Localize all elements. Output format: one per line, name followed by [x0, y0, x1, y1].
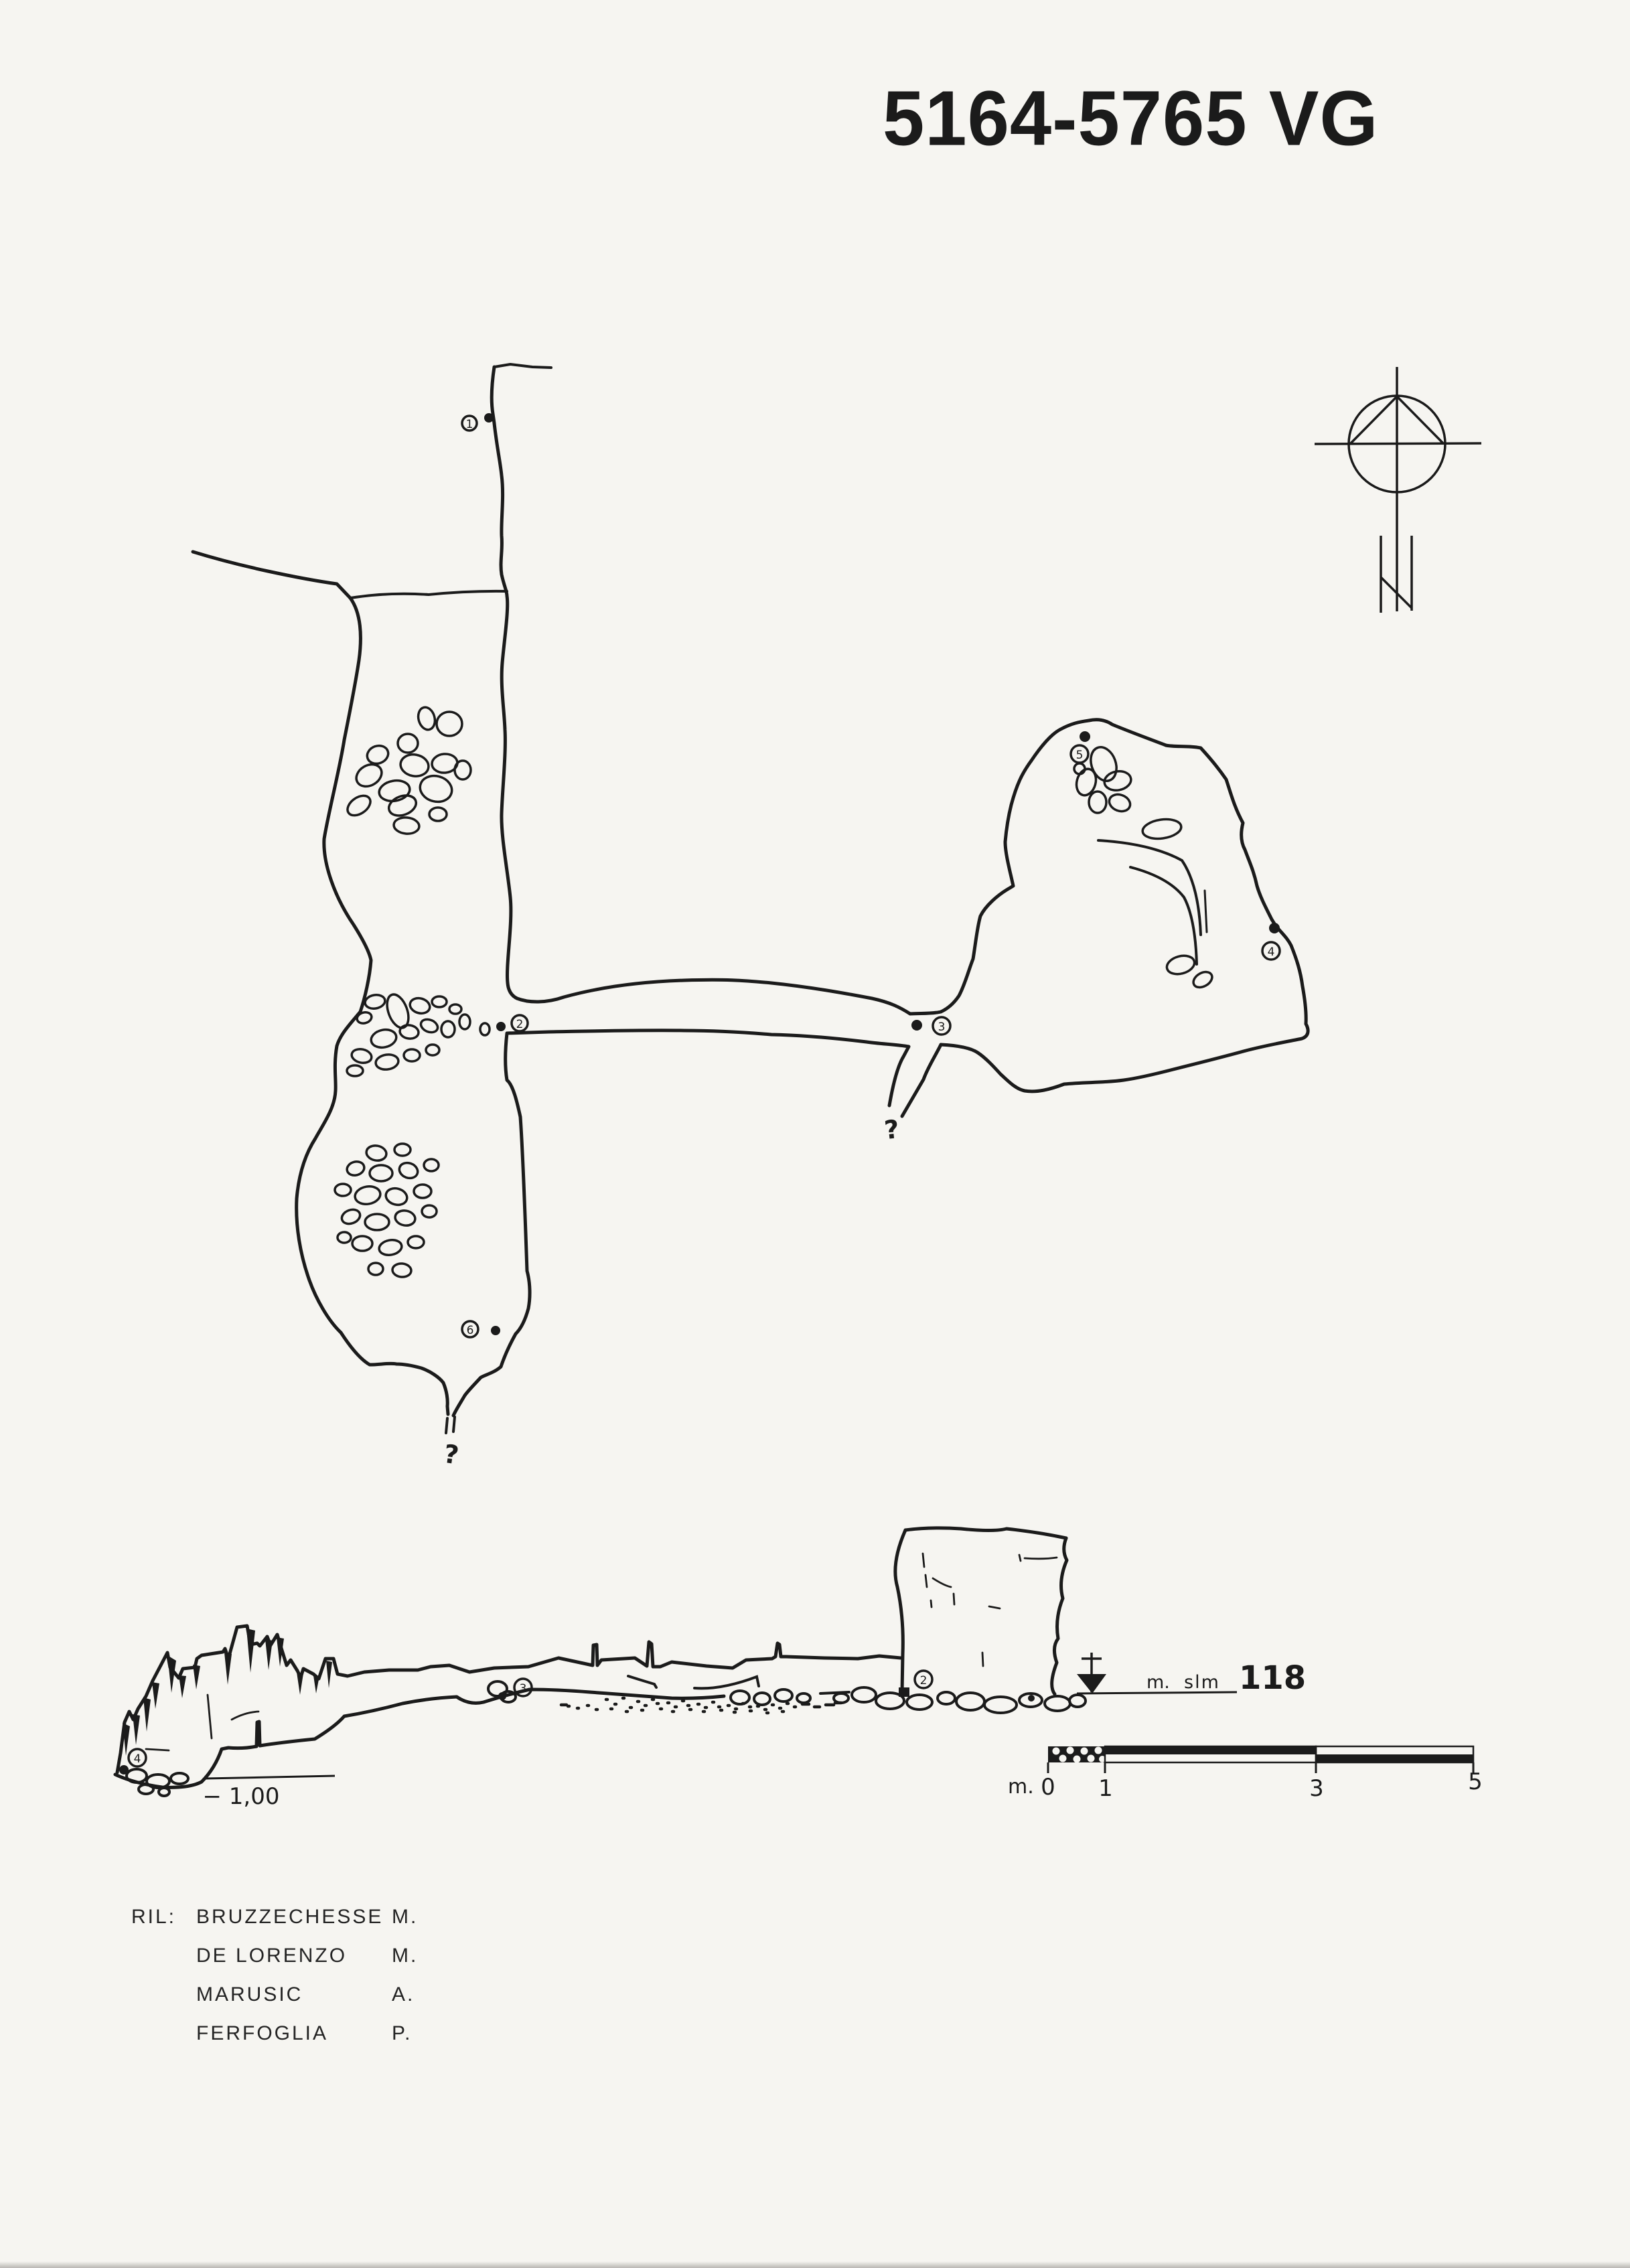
cobble	[775, 1689, 792, 1702]
ledge-line	[350, 591, 507, 598]
shaft-crack	[923, 1554, 932, 1607]
ledge-line	[146, 1749, 169, 1750]
elevation-unit: slm	[1184, 1672, 1220, 1693]
boulder	[1165, 953, 1196, 977]
boulder	[437, 712, 462, 736]
boulder	[378, 1238, 402, 1257]
plan-outline	[193, 364, 1308, 1433]
surveyor-name: DE LORENZO	[196, 1945, 392, 1967]
station-dot	[1269, 923, 1280, 933]
cobble	[1045, 1696, 1070, 1711]
boulder	[404, 1049, 420, 1061]
boulder	[384, 1186, 409, 1207]
boulder	[346, 1160, 366, 1177]
credits-block: RIL: BRUZZECHESSE M. DE LORENZO M. MARUS…	[131, 1906, 432, 2061]
boulder	[352, 1236, 372, 1251]
boulder	[365, 1214, 389, 1230]
station-dot	[491, 1326, 500, 1335]
boulder	[1107, 791, 1132, 814]
plan-breakdown-boulders	[335, 705, 1215, 1278]
boulder	[393, 816, 420, 834]
cross-section: 4 3 2 − 1,00	[115, 1528, 1306, 1810]
boulder	[399, 753, 431, 779]
elevation-value: 118	[1239, 1659, 1306, 1697]
credit-row: MARUSIC A.	[131, 1983, 432, 2022]
station-3: 3	[911, 1017, 950, 1035]
boulder	[424, 1159, 439, 1171]
boulder	[1191, 969, 1215, 990]
boulder	[422, 1205, 437, 1217]
boulder	[408, 1236, 424, 1248]
surveyor-initial: P.	[392, 2022, 432, 2045]
boulder	[432, 996, 447, 1007]
elevation-datum-marker: m. slm 118	[1077, 1653, 1306, 1697]
ledge-line	[232, 1712, 258, 1720]
plan-main-wall	[492, 367, 1308, 1091]
boulder	[414, 1185, 431, 1198]
boulder	[398, 734, 418, 753]
station-dot	[484, 413, 494, 423]
boulder	[417, 772, 455, 805]
station-dot	[496, 1022, 506, 1031]
boulder	[335, 1184, 351, 1196]
survey-sheet: 5164-5765 VG	[0, 0, 1630, 2268]
boulder	[392, 1263, 412, 1278]
station-6: 6	[462, 1321, 500, 1337]
scale-numbers: 0 1 3 5	[1041, 1768, 1483, 1802]
floor-step	[694, 1677, 759, 1688]
scale-dot	[1081, 1748, 1088, 1755]
scale-unit: m.	[1008, 1775, 1034, 1799]
boulder	[347, 1065, 363, 1076]
floor-dot	[1028, 1695, 1035, 1702]
boulder	[375, 1053, 400, 1071]
elevation-prefix: m.	[1146, 1672, 1170, 1693]
scale-dot	[1073, 1756, 1081, 1763]
cobble	[852, 1687, 876, 1702]
ledge-line	[208, 1695, 212, 1738]
cobble	[754, 1693, 770, 1705]
surveyor-name: FERFOGLIA	[196, 2022, 392, 2045]
scale-tick-label: 1	[1098, 1775, 1113, 1802]
plan-slope-lines	[1098, 840, 1207, 964]
scale-dot	[1095, 1747, 1102, 1754]
depth-label: − 1,00	[203, 1783, 280, 1810]
boulder	[1089, 791, 1106, 813]
scale-dot	[1053, 1748, 1060, 1755]
station-dot	[119, 1765, 129, 1774]
scale-segment-3-5-fill	[1316, 1754, 1473, 1762]
scale-dot	[1088, 1755, 1095, 1762]
station-label: 2	[516, 1018, 524, 1031]
station-label: 1	[466, 418, 473, 431]
scale-dot	[1059, 1755, 1067, 1762]
surveyor-initial: M.	[392, 1906, 432, 1929]
scale-segment-1-3-fill	[1105, 1746, 1316, 1754]
boulder	[416, 705, 437, 731]
plan-south-wall	[453, 1031, 909, 1416]
cobble	[797, 1693, 810, 1703]
scale-bar: m. 0 1 3 5	[1008, 1746, 1483, 1802]
plan-stations: 1 2 3 4	[462, 413, 1280, 1337]
cobble	[159, 1788, 169, 1796]
boulder	[449, 1004, 461, 1014]
surveyor-initial: A.	[392, 1983, 432, 2006]
boulder	[419, 1017, 440, 1035]
boulder	[441, 1021, 455, 1037]
slope-line	[1130, 867, 1197, 964]
surveyor-name: MARUSIC	[196, 1983, 392, 2006]
boulder	[340, 1207, 362, 1226]
north-arrow-horizontal	[1315, 443, 1481, 444]
station-1: 1	[462, 413, 494, 431]
station-dot	[1080, 731, 1090, 742]
boulder	[1141, 817, 1182, 841]
boulder	[394, 1144, 411, 1156]
plan-west-wall	[297, 598, 448, 1414]
credit-row: RIL: BRUZZECHESSE M.	[131, 1906, 432, 1945]
surface-line-entrance	[494, 364, 551, 368]
boulder	[399, 1024, 420, 1040]
plan-view: 1 2 3 4	[193, 364, 1308, 1470]
boulder	[354, 1185, 382, 1206]
boulder	[365, 1144, 387, 1162]
surveyor-initial: M.	[392, 1945, 432, 1967]
station-2: 2	[496, 1015, 528, 1031]
scale-dot	[1067, 1747, 1074, 1754]
shaft-left-wall	[895, 1530, 905, 1692]
boulder	[431, 753, 458, 773]
boulder	[459, 1014, 470, 1029]
boulder	[370, 1027, 398, 1049]
shaft-crack	[982, 1606, 1000, 1666]
station-label: 4	[1268, 946, 1275, 959]
cobble	[171, 1773, 188, 1784]
boulder	[368, 1263, 383, 1275]
boulder	[429, 808, 447, 821]
station-dot	[498, 1692, 506, 1700]
boulder	[394, 1209, 416, 1227]
station-label: 2	[920, 1674, 928, 1687]
boulder	[1086, 743, 1121, 784]
side-passage-right	[902, 1045, 941, 1116]
slope-line	[1205, 891, 1207, 932]
depth-underline	[206, 1776, 335, 1779]
station-label: 4	[134, 1752, 141, 1766]
slope-line	[1098, 840, 1201, 935]
boulder	[338, 1232, 351, 1243]
section-floor	[115, 1689, 724, 1787]
scale-tick-label: 0	[1041, 1774, 1055, 1801]
shaft-right-wall	[1052, 1538, 1067, 1694]
section-ceiling	[117, 1626, 901, 1772]
credit-row: FERFOGLIA P.	[131, 2022, 432, 2061]
boulder	[350, 1047, 373, 1065]
north-arrow-icon	[1315, 367, 1481, 613]
station-5: 5	[1071, 731, 1090, 763]
continuation-tails	[446, 1417, 455, 1433]
scan-edge-shadow	[0, 2261, 1630, 2268]
scale-tick-label: 5	[1468, 1768, 1483, 1795]
section-station-2: 2	[899, 1671, 1035, 1702]
boulder	[409, 996, 432, 1015]
scale-ticks	[1048, 1762, 1473, 1773]
station-label: 3	[520, 1682, 527, 1695]
boulder	[344, 791, 374, 819]
station-dot	[911, 1020, 922, 1031]
plan-question-marks: ? ?	[442, 1114, 901, 1470]
surveyor-name: BRUZZECHESSE	[196, 1906, 392, 1929]
boulder	[365, 743, 391, 766]
cobble	[731, 1691, 749, 1704]
stalactites	[123, 1629, 332, 1756]
boulder	[364, 994, 386, 1010]
station-label: 6	[467, 1324, 474, 1337]
station-label: 3	[938, 1020, 946, 1034]
boulder	[480, 1023, 490, 1035]
cobble	[938, 1692, 955, 1704]
scale-tick-label: 3	[1309, 1775, 1324, 1802]
question-mark: ?	[442, 1439, 461, 1470]
boulder	[426, 1045, 439, 1055]
datum-triangle-icon	[1077, 1674, 1106, 1693]
question-mark: ?	[883, 1114, 901, 1145]
shaft-top	[905, 1528, 1066, 1538]
credits-label: RIL:	[131, 1906, 196, 1929]
depth-label-group: − 1,00	[203, 1776, 336, 1810]
shaft-crack	[1019, 1555, 1057, 1561]
station-marker	[899, 1687, 909, 1697]
boulder	[397, 1160, 420, 1181]
boulder	[386, 792, 419, 820]
shaft-crack	[933, 1578, 954, 1604]
floor-step	[628, 1676, 656, 1687]
surface-line-left	[193, 552, 350, 598]
cobble	[956, 1693, 984, 1710]
cobble	[1069, 1695, 1086, 1707]
cobble	[907, 1695, 932, 1710]
station-4: 4	[1262, 923, 1280, 960]
credit-row: DE LORENZO M.	[131, 1945, 432, 1983]
station-label: 5	[1076, 749, 1084, 762]
cobble	[984, 1697, 1017, 1713]
boulder	[370, 1165, 392, 1181]
